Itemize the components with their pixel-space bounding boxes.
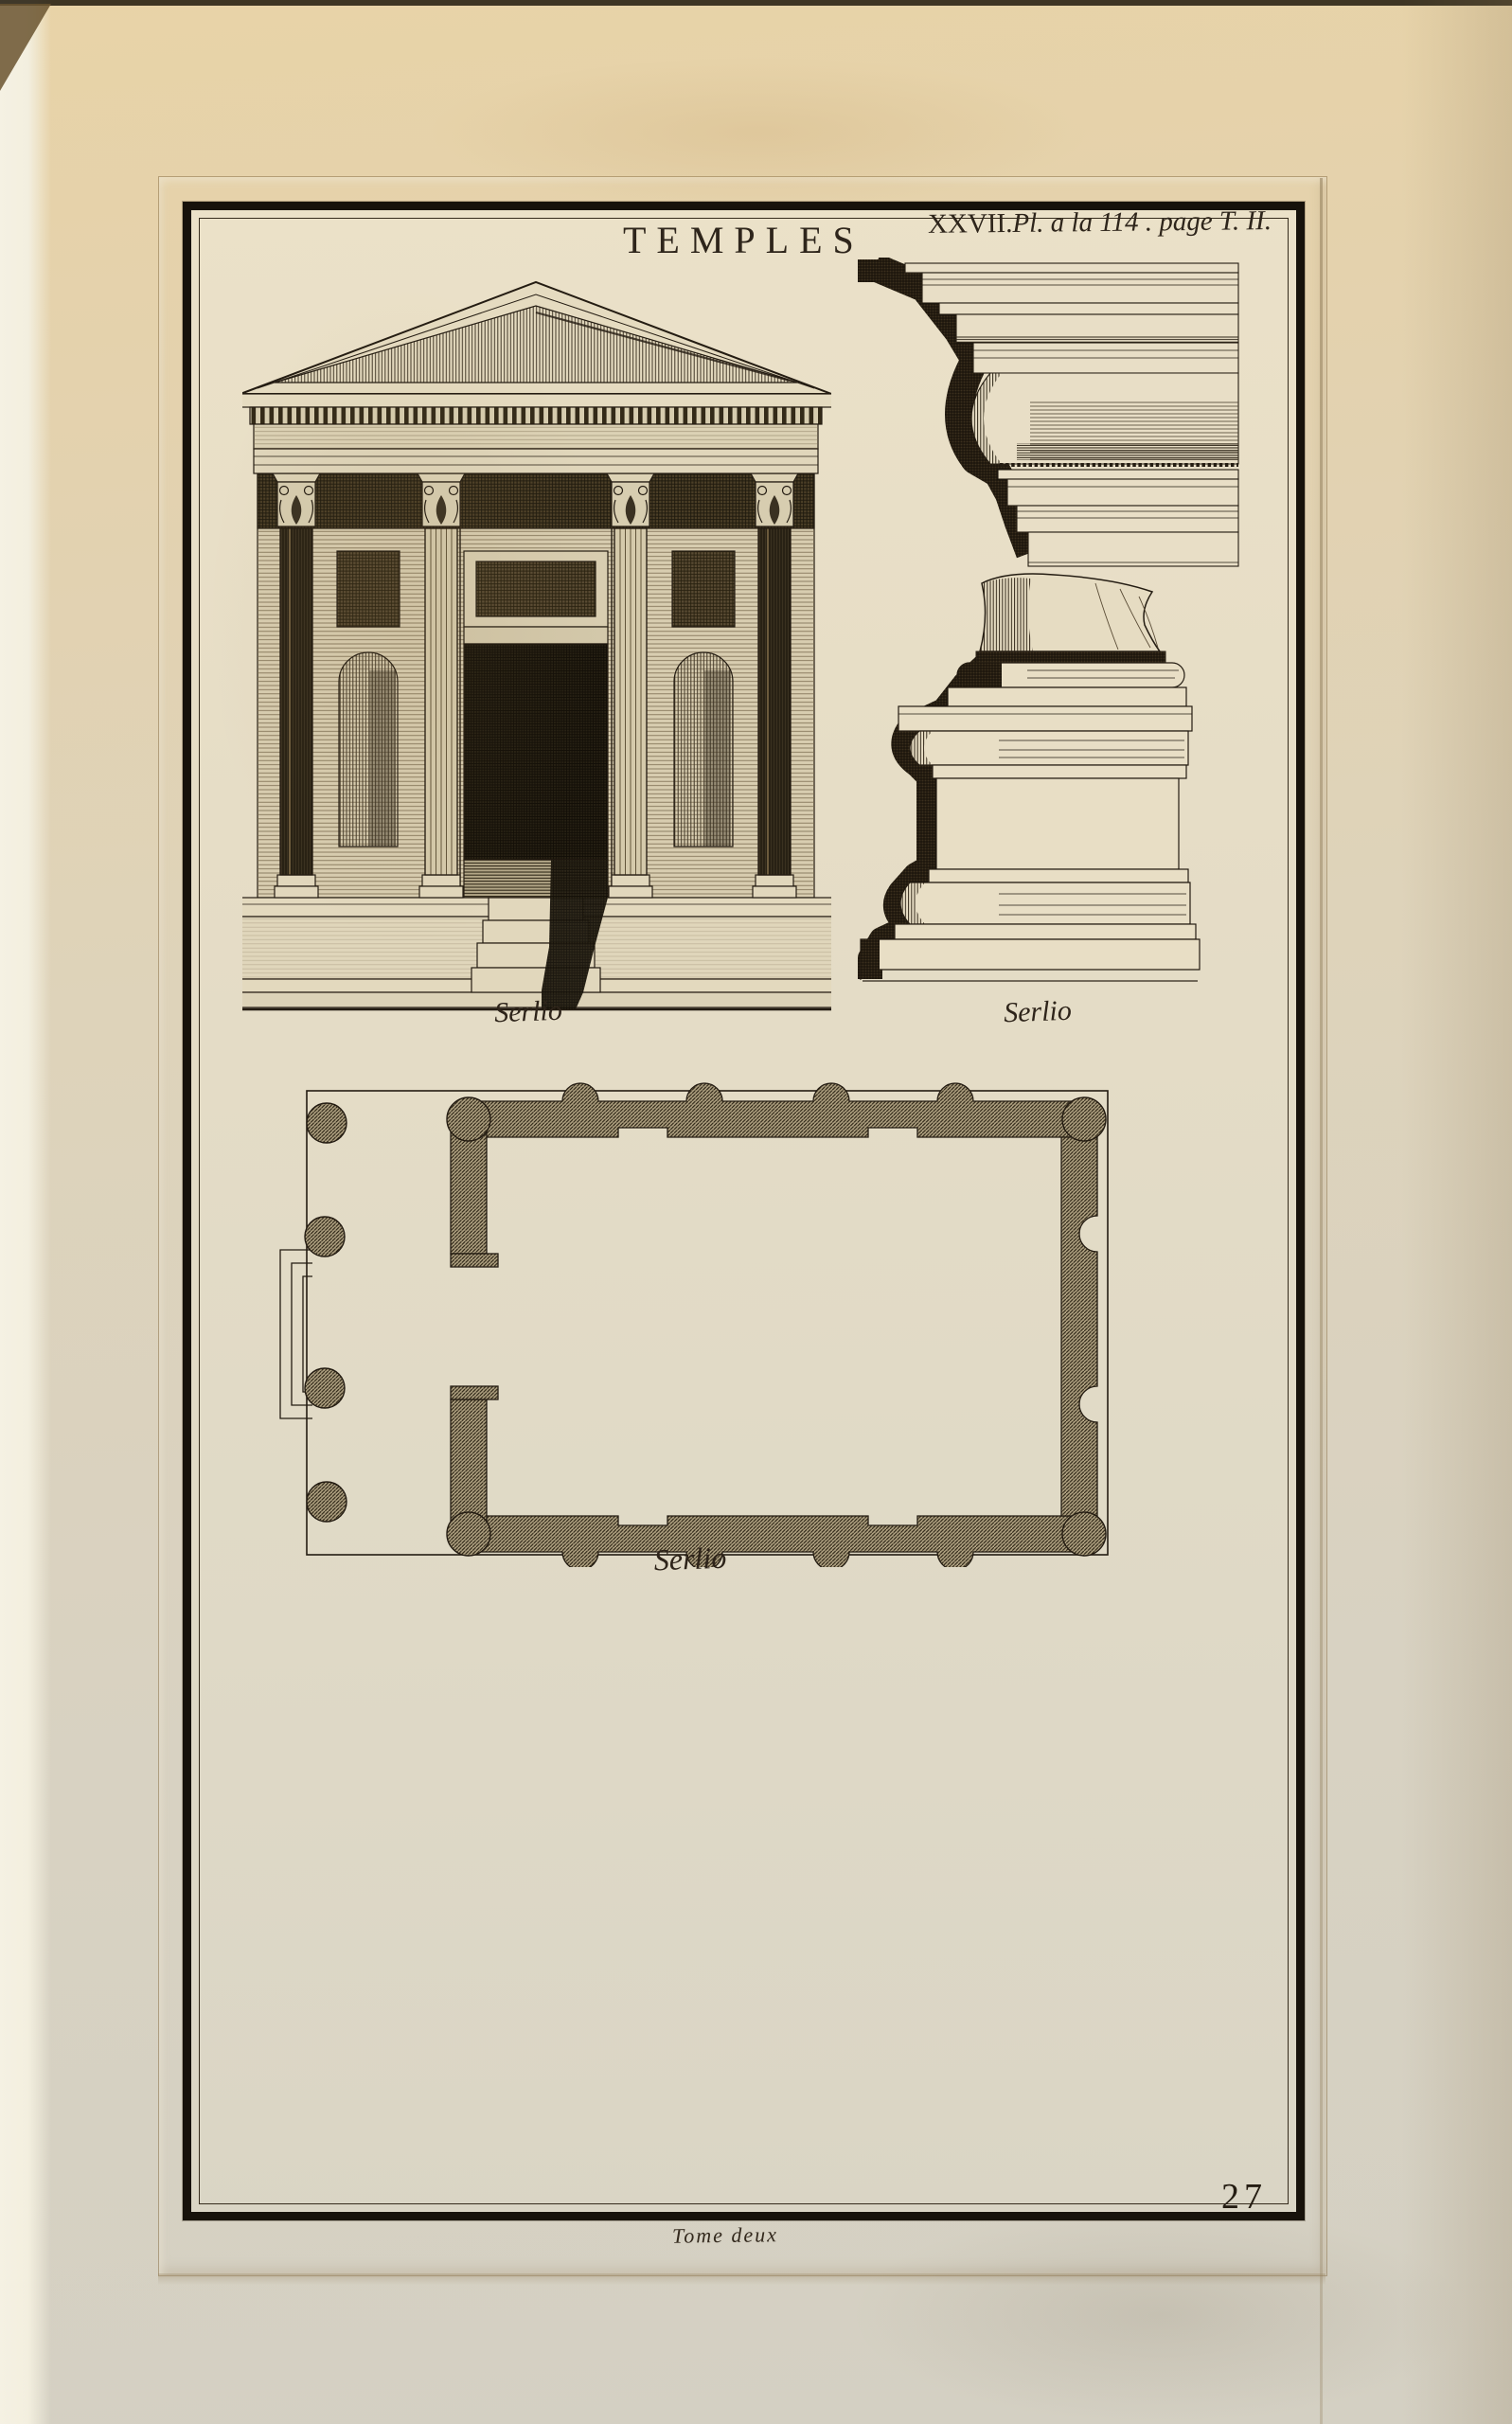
paper-stain: [426, 57, 1089, 208]
corner-shadow: [0, 4, 51, 91]
stylobate-outline: [307, 1091, 1108, 1555]
photo-top-edge: [0, 0, 1512, 6]
pedestal-die: [936, 778, 1179, 869]
plate-number-italic: Pl. a la 114 . page T. II.: [1012, 205, 1272, 239]
pedestal-moldings: [861, 663, 1200, 981]
pedestal-caption: Serlio: [980, 994, 1094, 1030]
plate-title: TEMPLES: [623, 218, 864, 262]
figure-cornice-profile: [831, 258, 1257, 570]
plate-reference: XXVII.Pl. a la 114 . page T. II.: [928, 205, 1272, 241]
corner-columns: [447, 1097, 1106, 1556]
facade-caption: Serlio: [471, 994, 585, 1030]
column-stump: [976, 574, 1165, 663]
tome-footer: Tome deux: [672, 2222, 778, 2249]
book-page-photo: TEMPLES XXVII.Pl. a la 114 . page T. II.: [0, 0, 1512, 2424]
paper-stain: [208, 284, 606, 947]
figure-temple-plan: [275, 1079, 1117, 1567]
page-deckle-edge: [0, 0, 51, 2424]
plate-crease: [1320, 178, 1323, 2424]
paper-stain: [852, 2206, 1468, 2424]
paper-right-shade: [1401, 0, 1512, 2424]
figure-pedestal-profile: [838, 568, 1264, 992]
portico-columns: [305, 1103, 347, 1522]
plate-number-roman: XXVII.: [928, 208, 1013, 240]
plan-caption: Serlio: [628, 1540, 752, 1579]
cella-walls: [451, 1083, 1097, 1567]
